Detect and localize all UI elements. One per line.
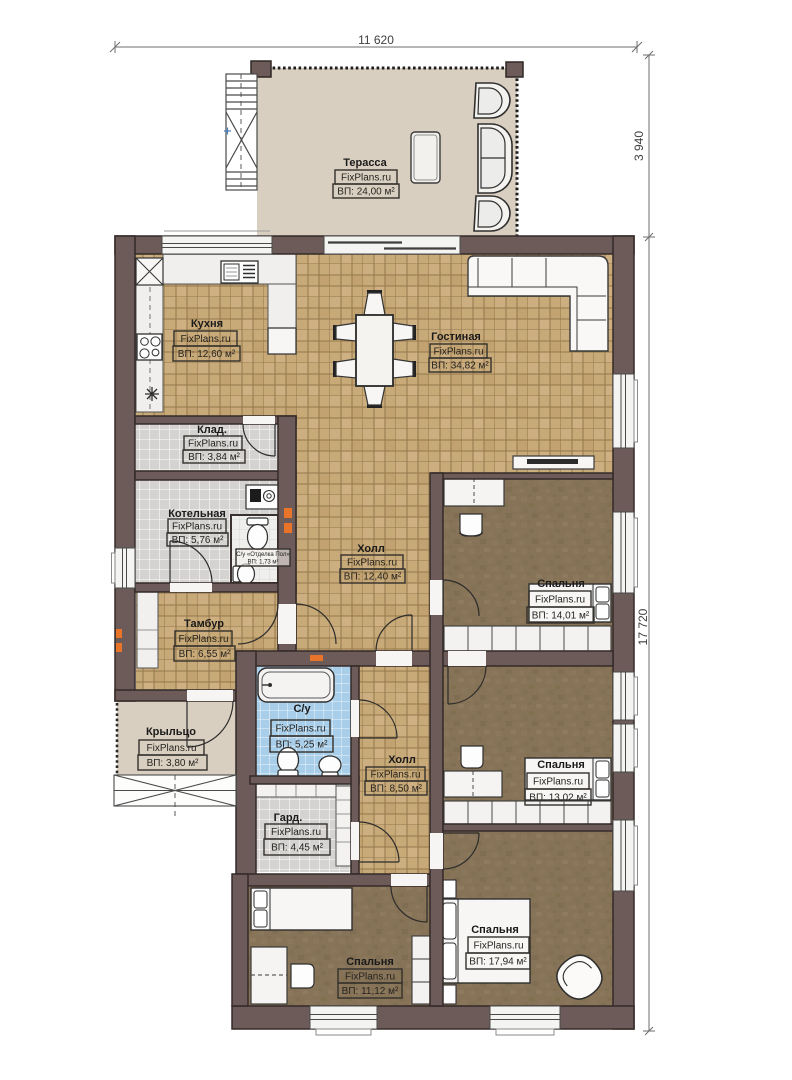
svg-text:Гард.: Гард. — [274, 812, 303, 824]
svg-text:ВП: 3,80 м²: ВП: 3,80 м² — [147, 758, 200, 769]
svg-text:FixPlans.ru: FixPlans.ru — [180, 334, 230, 345]
svg-text:3 940: 3 940 — [632, 131, 646, 161]
svg-text:ВП: 14,01 м²: ВП: 14,01 м² — [532, 611, 590, 622]
svg-text:ВП: 13,02 м²: ВП: 13,02 м² — [529, 793, 587, 804]
svg-text:FixPlans.ru: FixPlans.ru — [535, 595, 585, 606]
svg-text:ВП: 6,55 м²: ВП: 6,55 м² — [179, 649, 232, 660]
svg-text:FixPlans.ru: FixPlans.ru — [188, 439, 238, 450]
svg-text:FixPlans.ru: FixPlans.ru — [341, 173, 391, 184]
svg-text:FixPlans.ru: FixPlans.ru — [178, 634, 228, 645]
svg-text:ВП: 5,76 м²: ВП: 5,76 м² — [172, 535, 225, 546]
svg-text:С/у «Отделка Пол»: С/у «Отделка Пол» — [236, 552, 290, 558]
svg-text:Кухня: Кухня — [191, 318, 223, 330]
svg-text:FixPlans.ru: FixPlans.ru — [345, 972, 395, 983]
svg-text:FixPlans.ru: FixPlans.ru — [473, 941, 523, 952]
svg-text:FixPlans.ru: FixPlans.ru — [370, 770, 420, 781]
svg-text:Спальня: Спальня — [537, 759, 585, 771]
svg-text:Крыльцо: Крыльцо — [146, 726, 196, 738]
svg-text:ВП: 12,60 м²: ВП: 12,60 м² — [178, 349, 236, 360]
svg-text:ВП: 11,12 м²: ВП: 11,12 м² — [342, 986, 399, 997]
svg-text:FixPlans.ru: FixPlans.ru — [271, 827, 321, 838]
svg-text:ВП: 17,94 м²: ВП: 17,94 м² — [469, 957, 527, 968]
svg-text:FixPlans.ru: FixPlans.ru — [347, 558, 397, 569]
svg-text:FixPlans.ru: FixPlans.ru — [433, 347, 483, 358]
svg-text:Котельная: Котельная — [168, 508, 226, 520]
svg-text:ВП: 5,25 м²: ВП: 5,25 м² — [276, 740, 329, 751]
svg-text:Спальня: Спальня — [471, 924, 519, 936]
svg-text:ВП: 3,84 м²: ВП: 3,84 м² — [188, 452, 241, 463]
svg-text:Клад.: Клад. — [197, 424, 227, 436]
svg-text:ВП: 24,00 м²: ВП: 24,00 м² — [337, 187, 395, 198]
svg-text:FixPlans.ru: FixPlans.ru — [275, 724, 325, 735]
svg-text:Тамбур: Тамбур — [184, 618, 224, 630]
svg-text:Спальня: Спальня — [346, 956, 394, 968]
svg-text:ВП: 12,40 м²: ВП: 12,40 м² — [344, 572, 402, 583]
svg-text:FixPlans.ru: FixPlans.ru — [533, 777, 583, 788]
svg-text:С/у: С/у — [293, 703, 311, 715]
svg-text:ВП: 1,73 м²: ВП: 1,73 м² — [247, 560, 278, 566]
svg-text:FixPlans.ru: FixPlans.ru — [172, 522, 222, 533]
svg-text:Спальня: Спальня — [537, 578, 585, 590]
svg-text:FixPlans.ru: FixPlans.ru — [146, 743, 196, 754]
svg-text:Гостиная: Гостиная — [431, 331, 481, 343]
svg-text:Терасса: Терасса — [343, 157, 387, 169]
svg-text:Холл: Холл — [388, 754, 416, 766]
svg-text:17 720: 17 720 — [636, 608, 650, 645]
svg-text:ВП: 34,82 м²: ВП: 34,82 м² — [431, 361, 489, 372]
svg-text:Холл: Холл — [357, 543, 385, 555]
svg-text:ВП: 8,50 м²: ВП: 8,50 м² — [370, 784, 423, 795]
svg-text:ВП: 4,45 м²: ВП: 4,45 м² — [271, 843, 324, 854]
svg-text:11 620: 11 620 — [358, 33, 394, 47]
